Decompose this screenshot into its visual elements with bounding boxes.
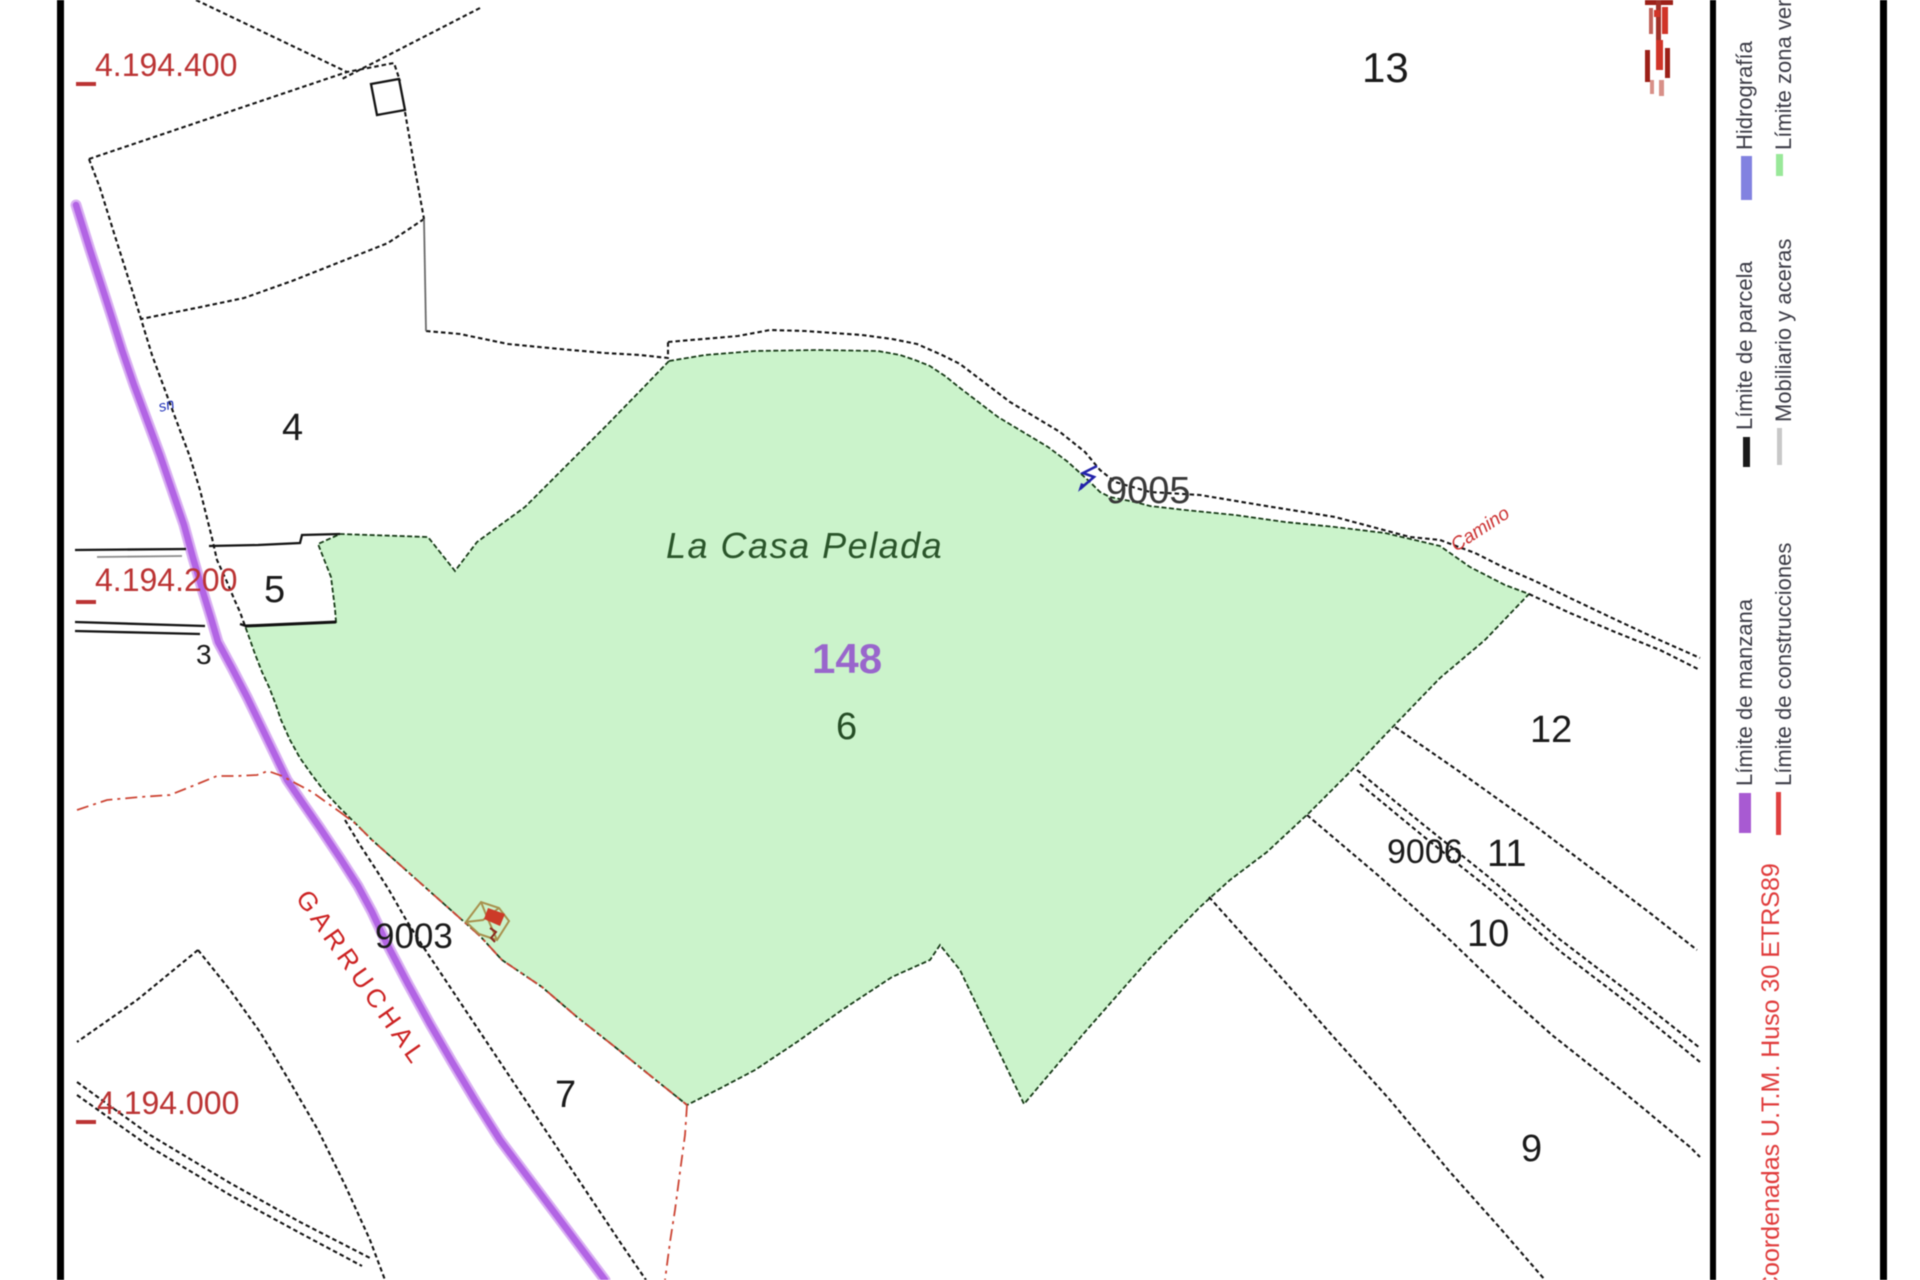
svg-text:10: 10 [1467,913,1509,955]
svg-text:Mobiliario y aceras: Mobiliario y aceras [1771,239,1796,422]
svg-text:GARRUCHAL: GARRUCHAL [290,884,434,1072]
svg-text:sn: sn [157,395,177,416]
svg-text:Camino: Camino [1447,503,1513,556]
svg-text:9: 9 [1521,1128,1542,1170]
svg-text:3: 3 [196,639,212,670]
svg-text:12: 12 [1530,709,1572,751]
svg-text:6: 6 [836,706,857,748]
svg-text:4.194.200: 4.194.200 [95,562,237,598]
svg-text:Límite de parcela: Límite de parcela [1732,260,1757,430]
svg-text:7: 7 [555,1074,576,1116]
svg-text:Coordenadas U.T.M. Huso 30 ETR: Coordenadas U.T.M. Huso 30 ETRS89 [1757,863,1785,1280]
svg-text:4: 4 [282,407,303,449]
svg-text:13: 13 [1362,44,1409,91]
svg-text:11: 11 [1487,833,1526,875]
svg-text:5: 5 [264,569,285,611]
svg-text:4.194.000: 4.194.000 [97,1085,239,1121]
svg-text:4.194.400: 4.194.400 [95,47,237,83]
svg-text:9005: 9005 [1106,470,1191,512]
svg-text:Límite zona verde: Límite zona verde [1771,0,1796,150]
svg-text:Límite de manzana: Límite de manzana [1732,598,1757,786]
svg-text:9003: 9003 [375,917,453,956]
svg-text:Hidrografía: Hidrografía [1732,40,1757,150]
svg-text:148: 148 [812,635,882,682]
svg-text:9006: 9006 [1387,833,1463,871]
svg-text:La Casa Pelada: La Casa Pelada [666,525,943,566]
svg-text:Límite de construcciones: Límite de construcciones [1771,543,1796,786]
